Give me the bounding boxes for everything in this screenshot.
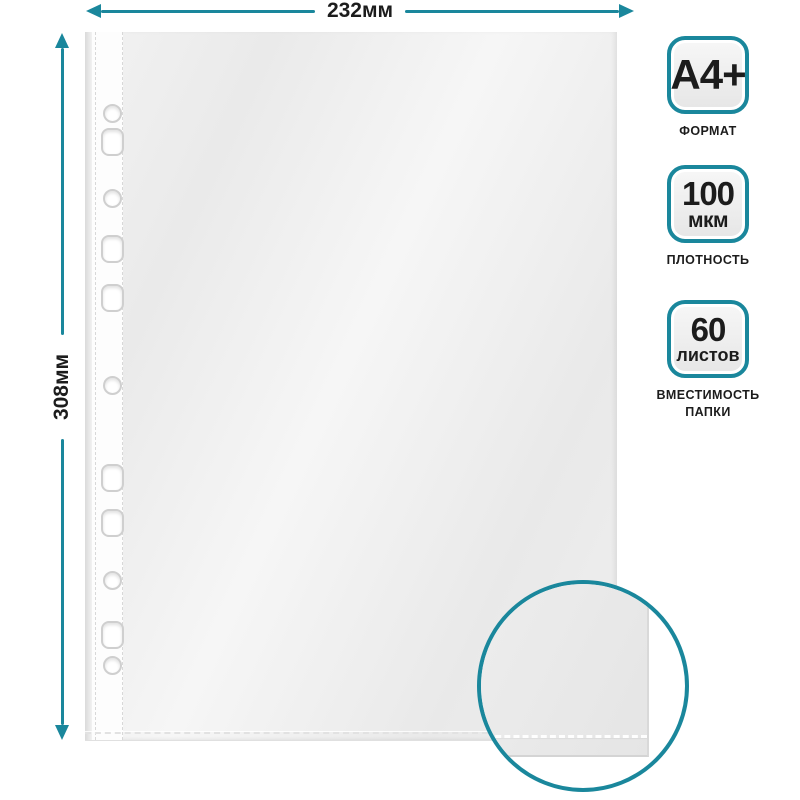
product-image-scene: 232мм 308мм xyxy=(0,0,800,800)
spec-badge-group-capacity: 60 листов ВМЕСТИМОСТЬ ПАПКИ xyxy=(640,300,776,421)
thickness-caption-line: ПЛОТНОСТЬ xyxy=(667,252,750,269)
capacity-badge: 60 листов xyxy=(667,300,749,378)
format-badge: A4+ xyxy=(667,36,749,114)
stitch-line xyxy=(95,32,96,740)
punch-hole xyxy=(103,104,122,123)
format-value: A4+ xyxy=(670,54,745,96)
thickness-caption: ПЛОТНОСТЬ xyxy=(667,252,750,269)
sheet-fold-edge xyxy=(85,32,92,740)
punch-hole xyxy=(101,128,124,156)
height-dimension-line xyxy=(61,439,64,726)
width-dimension: 232мм xyxy=(86,0,634,22)
thickness-value: 100 xyxy=(682,177,734,210)
punch-hole xyxy=(101,621,124,649)
height-dimension-labelbox: 308мм xyxy=(52,335,72,439)
spec-badge-group-thickness: 100 мкм ПЛОТНОСТЬ xyxy=(640,165,776,269)
format-caption: ФОРМАТ xyxy=(679,123,736,140)
spec-badge-group-format: A4+ ФОРМАТ xyxy=(640,36,776,140)
capacity-caption-line: ВМЕСТИМОСТЬ xyxy=(657,387,760,404)
punch-hole xyxy=(101,464,124,492)
capacity-caption-line: ПАПКИ xyxy=(657,404,760,421)
width-dimension-line xyxy=(405,10,619,13)
arrowhead-right-icon xyxy=(619,4,634,18)
thickness-badge: 100 мкм xyxy=(667,165,749,243)
arrowhead-left-icon xyxy=(86,4,101,18)
punched-margin-strip xyxy=(92,32,123,740)
punch-hole xyxy=(101,235,124,263)
thickness-unit: мкм xyxy=(688,210,728,232)
punch-hole xyxy=(103,376,122,395)
magnified-sheet-corner xyxy=(477,580,649,757)
magnifier-circle xyxy=(477,580,689,792)
height-dimension: 308мм xyxy=(52,33,72,740)
punch-hole xyxy=(103,571,122,590)
width-dimension-label: 232мм xyxy=(315,0,405,23)
punch-hole xyxy=(103,189,122,208)
arrowhead-up-icon xyxy=(55,33,69,48)
punch-hole xyxy=(103,656,122,675)
width-dimension-line xyxy=(101,10,315,13)
magnified-weld-seam xyxy=(477,735,647,738)
height-dimension-line xyxy=(61,48,64,335)
capacity-value: 60 xyxy=(691,313,726,346)
punch-hole xyxy=(101,284,124,312)
punch-hole xyxy=(101,509,124,537)
arrowhead-down-icon xyxy=(55,725,69,740)
format-caption-line: ФОРМАТ xyxy=(679,123,736,140)
capacity-caption: ВМЕСТИМОСТЬ ПАПКИ xyxy=(657,387,760,421)
height-dimension-label: 308мм xyxy=(50,353,74,419)
capacity-unit: листов xyxy=(676,346,739,365)
